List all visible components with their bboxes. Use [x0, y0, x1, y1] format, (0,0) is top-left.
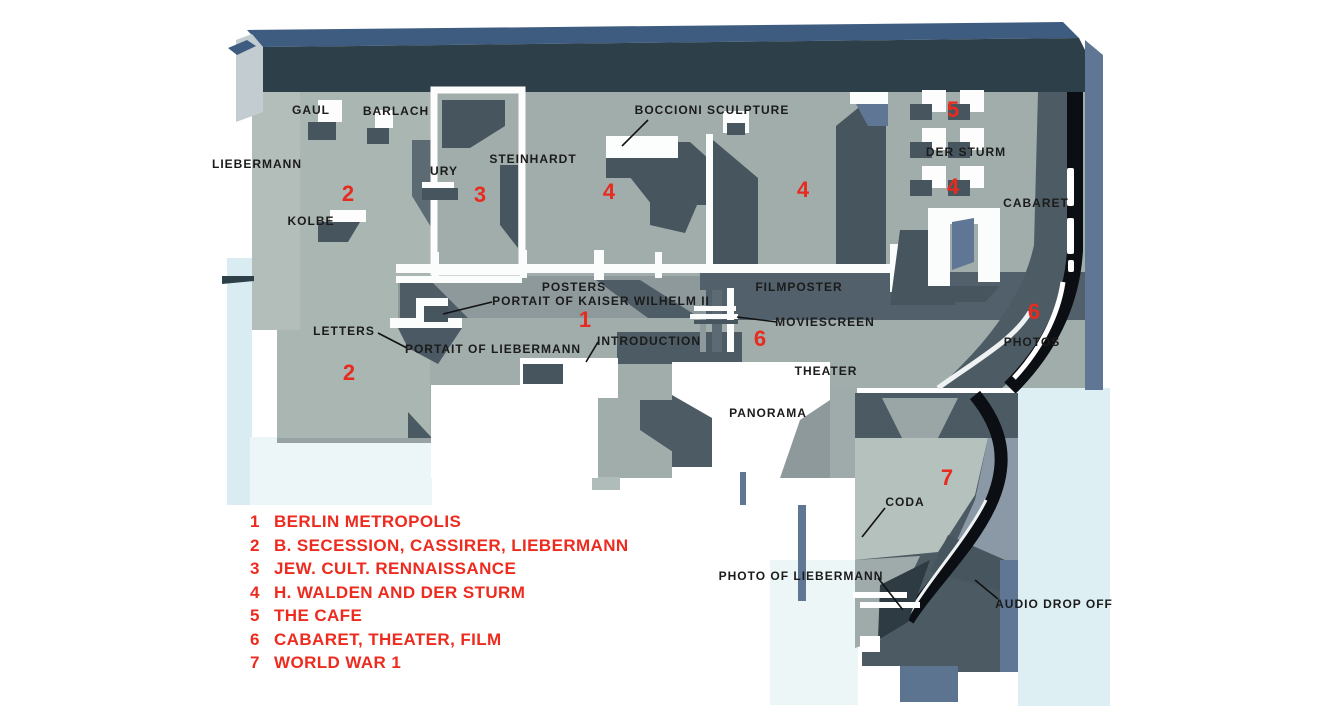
label-introduction: INTRODUCTION — [597, 335, 701, 347]
label-photo-of-liebermann: PHOTO OF LIEBERMANN — [719, 570, 884, 582]
label-steinhardt: STEINHARDT — [489, 153, 576, 165]
legend-text: JEW. CULT. RENNAISSANCE — [274, 557, 516, 581]
label-ury: URY — [430, 165, 458, 177]
legend-text: WORLD WAR 1 — [274, 651, 401, 675]
label-theater: THEATER — [795, 365, 858, 377]
legend-number: 3 — [250, 557, 274, 581]
legend-number: 2 — [250, 534, 274, 558]
label-gaul: GAUL — [292, 104, 330, 116]
label-photos: PHOTOS — [1004, 336, 1060, 348]
label-barlach: BARLACH — [363, 105, 429, 117]
legend-text: THE CAFE — [274, 604, 362, 628]
zone-marker-1: 1 — [579, 309, 591, 331]
label-moviescreen: MOVIESCREEN — [775, 316, 875, 328]
label-filmposter: FILMPOSTER — [755, 281, 842, 293]
label-audio-drop-off: AUDIO DROP OFF — [995, 598, 1113, 610]
legend-text: H. WALDEN AND DER STURM — [274, 581, 525, 605]
label-coda: CODA — [885, 496, 924, 508]
exhibition-floor-plan: GAUL BARLACH LIEBERMANN URY STEINHARDT K… — [0, 0, 1334, 712]
legend-row: 6CABARET, THEATER, FILM — [250, 628, 629, 652]
label-portait-of-liebermann: PORTAIT OF LIEBERMANN — [405, 343, 581, 355]
zone-marker-4b: 4 — [797, 179, 809, 201]
label-kolbe: KOLBE — [288, 215, 335, 227]
zone-marker-7: 7 — [941, 467, 953, 489]
legend-row: 7WORLD WAR 1 — [250, 651, 629, 675]
label-der-sturm: DER STURM — [926, 146, 1006, 158]
legend-number: 7 — [250, 651, 274, 675]
legend-number: 4 — [250, 581, 274, 605]
label-portait-of-kaiser-wilhelm-ii: PORTAIT OF KAISER WILHELM II — [492, 295, 710, 307]
zone-marker-6a: 6 — [754, 328, 766, 350]
legend-row: 5THE CAFE — [250, 604, 629, 628]
zone-marker-4c: 4 — [947, 176, 959, 198]
zone-marker-6b: 6 — [1028, 301, 1040, 323]
label-panorama: PANORAMA — [729, 407, 807, 419]
label-letters: LETTERS — [313, 325, 375, 337]
label-posters: POSTERS — [542, 281, 606, 293]
legend-row: 1BERLIN METROPOLIS — [250, 510, 629, 534]
legend-text: B. SECESSION, CASSIRER, LIEBERMANN — [274, 534, 629, 558]
zone-marker-4a: 4 — [603, 181, 615, 203]
zone-marker-2b: 2 — [343, 362, 355, 384]
label-liebermann: LIEBERMANN — [212, 158, 302, 170]
zone-marker-3: 3 — [474, 184, 486, 206]
zone-marker-2: 2 — [342, 183, 354, 205]
label-boccioni-sculpture: BOCCIONI SCULPTURE — [635, 104, 790, 116]
zone-marker-5: 5 — [947, 99, 959, 121]
zone-legend: 1BERLIN METROPOLIS 2B. SECESSION, CASSIR… — [250, 510, 629, 675]
legend-row: 4H. WALDEN AND DER STURM — [250, 581, 629, 605]
label-cabaret: CABARET — [1003, 197, 1069, 209]
legend-row: 3JEW. CULT. RENNAISSANCE — [250, 557, 629, 581]
legend-number: 1 — [250, 510, 274, 534]
legend-text: BERLIN METROPOLIS — [274, 510, 461, 534]
legend-number: 6 — [250, 628, 274, 652]
legend-text: CABARET, THEATER, FILM — [274, 628, 502, 652]
legend-row: 2B. SECESSION, CASSIRER, LIEBERMANN — [250, 534, 629, 558]
legend-number: 5 — [250, 604, 274, 628]
